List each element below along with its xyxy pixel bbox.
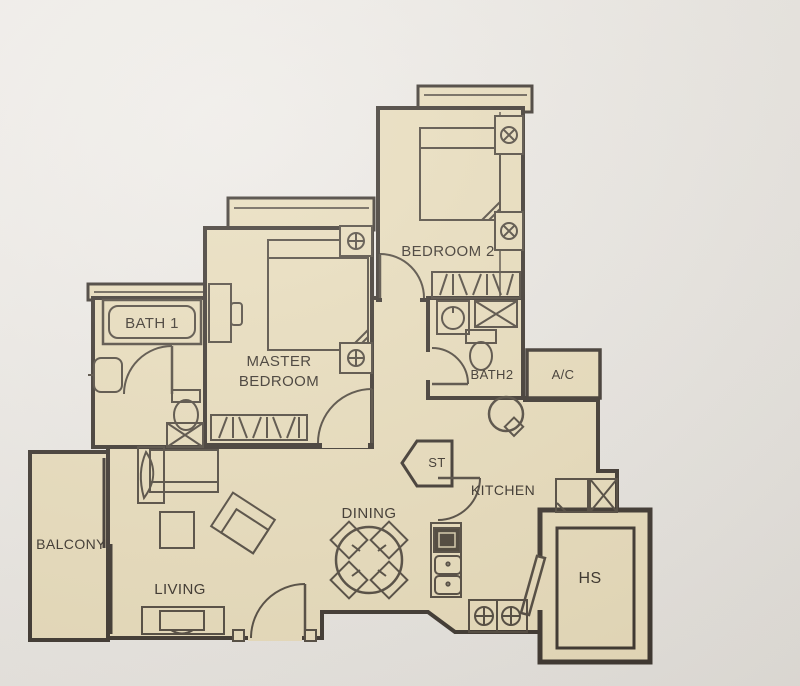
stove-icon: [434, 528, 460, 552]
room-label-store: ST: [412, 454, 462, 472]
room-label-ac-ledge: A/C: [533, 366, 593, 384]
room-label-kitchen: KITCHEN: [453, 481, 553, 500]
room-label-balcony: BALCONY: [31, 535, 111, 554]
floorplan-drawing: [0, 0, 800, 686]
window-mark-icon: [340, 343, 372, 373]
room-label-master-bedroom: MASTER BEDROOM: [224, 352, 334, 393]
window-mark-icon: [495, 116, 523, 154]
floorplan-photo: BATH 1 MASTER BEDROOM BEDROOM 2 BATH2 A/…: [0, 0, 800, 686]
room-label-household-shelter: HS: [560, 568, 620, 590]
room-label-bath1: BATH 1: [104, 314, 200, 334]
room-label-bedroom2: BEDROOM 2: [378, 242, 518, 262]
room-label-bath2: BATH2: [457, 366, 527, 384]
room-label-dining: DINING: [319, 504, 419, 524]
room-label-living: LIVING: [130, 580, 230, 600]
window-mark-icon: [340, 226, 372, 256]
